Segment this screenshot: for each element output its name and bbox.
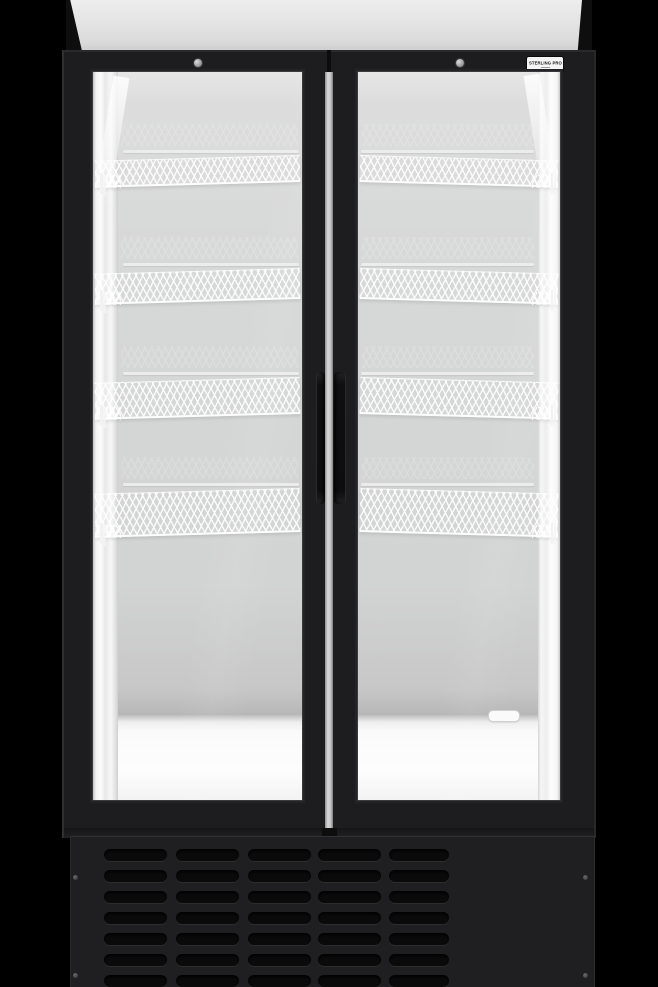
vent-slot — [104, 912, 167, 924]
left-door-handle-recess — [316, 372, 325, 504]
shelf-support-leg — [551, 173, 554, 194]
shelf-back-rail — [361, 263, 534, 266]
shelf-support-leg — [100, 523, 103, 544]
vent-slot — [176, 954, 239, 966]
wire-shelf — [95, 377, 301, 420]
shelf-reflection — [121, 457, 298, 479]
grille-screw — [73, 973, 78, 978]
interior-floor — [358, 715, 560, 800]
shelf-reflection — [362, 457, 534, 479]
shelf-back-rail — [123, 483, 299, 486]
light-box-canopy — [66, 0, 592, 56]
shelf-bracket — [532, 175, 558, 188]
vent-slot — [104, 975, 167, 987]
shelf-support-leg — [100, 290, 103, 311]
wire-shelf — [359, 488, 558, 538]
vent-slot — [104, 933, 167, 945]
shelf-support-leg — [551, 523, 554, 544]
wire-shelf — [360, 268, 559, 305]
shelf-back-rail — [123, 263, 299, 266]
vent-slot — [389, 933, 449, 945]
vent-slot — [248, 849, 311, 861]
vent-slot — [104, 849, 167, 861]
vent-slot — [176, 870, 239, 882]
shelf-support-leg — [100, 173, 103, 194]
vent-slot — [318, 954, 381, 966]
vent-slot — [176, 891, 239, 903]
shelf-back-rail — [361, 483, 534, 486]
grille-screw — [583, 973, 588, 978]
shelf-back-rail — [123, 150, 299, 153]
shelf-support-leg — [551, 405, 554, 426]
interior-drain-tab — [488, 710, 520, 722]
vent-slot — [176, 975, 239, 987]
vent-slot — [389, 912, 449, 924]
vent-slot — [248, 912, 311, 924]
shelf-reflection — [362, 124, 534, 146]
door-gap-top-seam — [327, 50, 331, 72]
wire-shelf — [94, 488, 300, 538]
vent-slot — [389, 870, 449, 882]
shelf-bracket — [532, 525, 558, 538]
vent-slot — [248, 954, 311, 966]
shelf-reflection — [121, 124, 298, 146]
shelf-reflection — [121, 237, 298, 259]
grille-screw — [583, 875, 588, 880]
vent-slot — [176, 849, 239, 861]
shelf-bracket — [95, 407, 121, 420]
vent-slot — [318, 849, 381, 861]
interior-floor — [93, 715, 302, 800]
wire-shelf — [359, 377, 558, 420]
hinge-screw-right — [455, 58, 465, 68]
fridge-cabinet: STERLING PRO — [62, 50, 596, 838]
vent-slot — [318, 891, 381, 903]
vent-slot — [389, 954, 449, 966]
display-fridge-photo: STERLING PRO — [0, 0, 658, 987]
shelf-reflection — [121, 346, 298, 368]
wire-shelf — [95, 155, 301, 188]
shelf-back-rail — [361, 150, 534, 153]
shelf-back-rail — [361, 372, 534, 375]
shelf-bracket — [532, 407, 558, 420]
vent-slot — [389, 849, 449, 861]
vent-grille-panel — [70, 836, 595, 987]
vent-slot — [248, 933, 311, 945]
shelf-bracket — [95, 525, 121, 538]
brand-badge-underline — [541, 67, 550, 68]
shelf-support-leg — [551, 290, 554, 311]
vent-slot — [104, 870, 167, 882]
shelf-reflection — [362, 346, 534, 368]
center-mullion — [325, 72, 333, 828]
right-door-glass — [358, 72, 560, 800]
brand-badge: STERLING PRO — [527, 57, 563, 72]
vent-slot — [248, 891, 311, 903]
shelf-bracket — [532, 292, 558, 305]
vent-slot — [318, 912, 381, 924]
light-box-panel — [66, 0, 592, 50]
vent-slot — [389, 891, 449, 903]
shelf-reflection — [362, 237, 534, 259]
hinge-screw-left — [193, 58, 203, 68]
vent-slot — [389, 975, 449, 987]
wire-shelf — [95, 268, 301, 305]
shelf-bracket — [95, 292, 121, 305]
vent-slot — [104, 891, 167, 903]
shelf-back-rail — [123, 372, 299, 375]
wire-shelf — [360, 155, 559, 188]
vent-slot — [104, 954, 167, 966]
vent-slot — [248, 975, 311, 987]
vent-slot — [318, 933, 381, 945]
shelf-bracket — [95, 175, 121, 188]
vent-slot — [176, 912, 239, 924]
vent-slot — [318, 870, 381, 882]
right-door-handle-recess — [334, 372, 346, 504]
brand-badge-label: STERLING PRO — [529, 62, 562, 66]
left-door-glass — [93, 72, 302, 800]
vent-slot — [318, 975, 381, 987]
vent-slot — [176, 933, 239, 945]
vent-slot — [248, 870, 311, 882]
grille-screw — [73, 875, 78, 880]
shelf-support-leg — [100, 405, 103, 426]
